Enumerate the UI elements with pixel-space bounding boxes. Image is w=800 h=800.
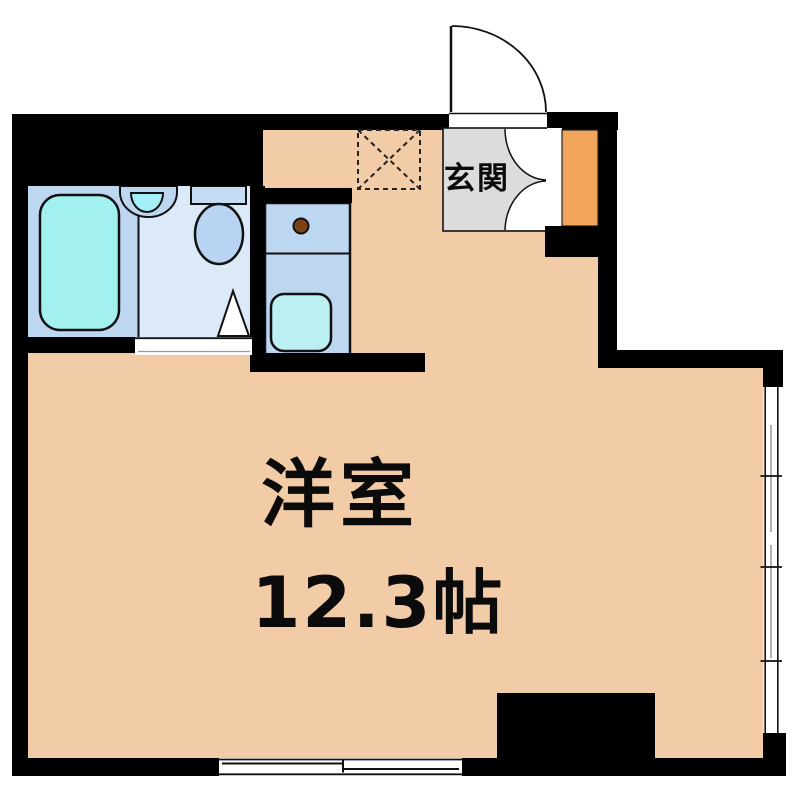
wall-right-window-top-corner (763, 350, 783, 387)
cabinet-strip (547, 128, 562, 226)
wall-kitchen-top (250, 188, 352, 203)
wall-genkan-bottom (545, 226, 617, 257)
shoe-cabinet-icon (562, 130, 598, 226)
bathroom-threshold (135, 337, 252, 355)
toilet-bowl-icon (195, 204, 243, 264)
wall-upper-right-horizontal (615, 350, 767, 368)
window-bottom (219, 758, 462, 776)
toilet-tank-icon (191, 186, 246, 204)
kitchen-sink-icon (271, 294, 331, 351)
outside-area (617, 0, 800, 352)
floorplan-drawing: 玄関 洋室 12.3帖 (0, 0, 800, 800)
bathtub-icon (40, 195, 119, 330)
entrance-threshold (449, 112, 547, 128)
wall-top-mid (263, 114, 449, 130)
wall-bathroom-bottom (28, 337, 137, 353)
wall-left (12, 114, 28, 776)
window-right (761, 387, 783, 733)
burner-knob-icon (294, 219, 309, 234)
wall-top-left-mass (12, 114, 263, 186)
genkan-label: 玄関 (444, 161, 510, 197)
entrance-area: 玄関 (443, 24, 617, 257)
wall-kitchen-bottom (250, 353, 425, 372)
floorplan-canvas: 玄関 洋室 12.3帖 (0, 0, 800, 800)
room-name-label: 洋室 (261, 452, 419, 538)
pillar (497, 693, 655, 776)
room-size-label: 12.3帖 (252, 562, 505, 644)
wall-bath-kitchen-divider (250, 186, 265, 355)
